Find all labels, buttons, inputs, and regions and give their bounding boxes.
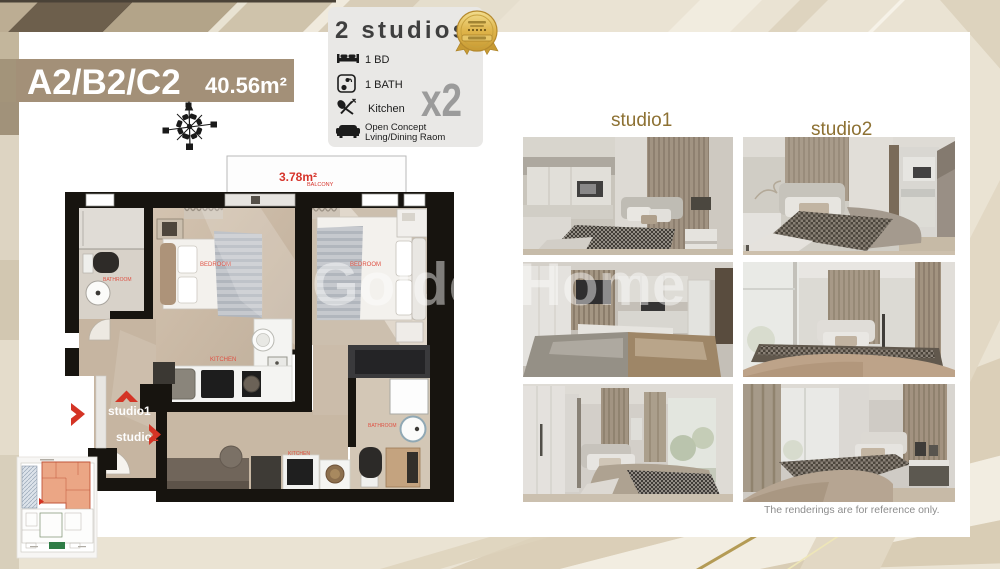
svg-text:KITCHEN: KITCHEN bbox=[288, 451, 310, 457]
svg-text:studio2: studio2 bbox=[811, 119, 872, 140]
svg-text:studio1: studio1 bbox=[611, 110, 672, 131]
svg-text:Kitchen: Kitchen bbox=[368, 103, 405, 115]
svg-text:studio1: studio1 bbox=[108, 404, 151, 418]
svg-text:GoldenHome: GoldenHome bbox=[312, 251, 685, 318]
svg-text:BALCONY: BALCONY bbox=[307, 182, 334, 188]
svg-text:KITCHEN: KITCHEN bbox=[210, 357, 236, 363]
svg-text:x2: x2 bbox=[421, 74, 462, 126]
svg-text:BATHROOM: BATHROOM bbox=[103, 277, 132, 283]
svg-text:1 BATH: 1 BATH bbox=[365, 79, 403, 91]
svg-text:The renderings are for referen: The renderings are for reference only. bbox=[764, 504, 939, 516]
svg-text:2 studios: 2 studios bbox=[335, 17, 469, 44]
svg-text:Lving/Dining Raom: Lving/Dining Raom bbox=[365, 132, 445, 143]
svg-text:1 BD: 1 BD bbox=[365, 54, 390, 66]
svg-text:A2/B2/C2: A2/B2/C2 bbox=[27, 63, 181, 102]
svg-text:40.56m²: 40.56m² bbox=[205, 73, 287, 98]
svg-text:BATHROOM: BATHROOM bbox=[368, 423, 397, 429]
